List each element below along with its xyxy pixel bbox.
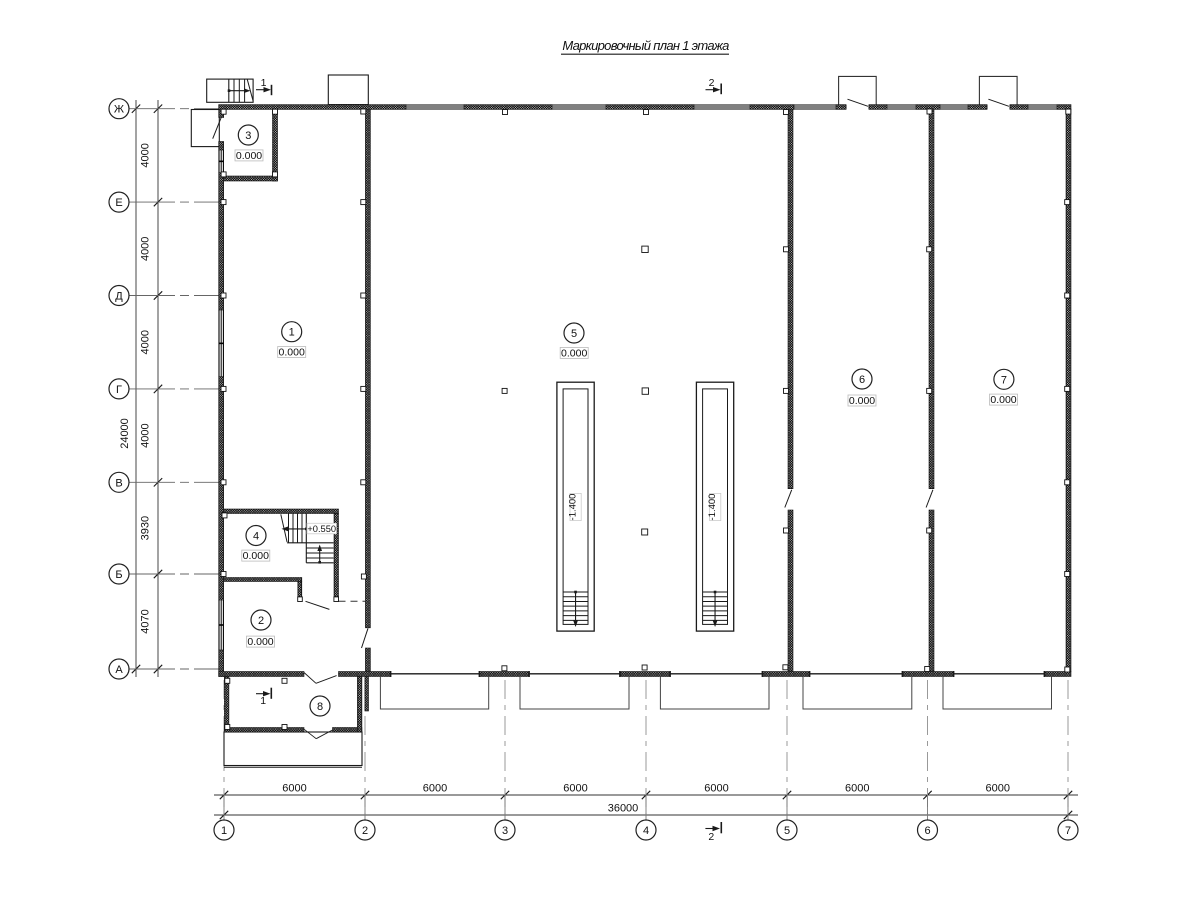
svg-text:0.000: 0.000: [247, 636, 273, 648]
svg-text:2: 2: [709, 77, 715, 89]
svg-text:0.000: 0.000: [849, 395, 875, 407]
svg-text:4: 4: [253, 530, 259, 542]
svg-text:Е: Е: [115, 197, 122, 209]
svg-text:24000: 24000: [119, 418, 131, 449]
svg-text:6000: 6000: [282, 783, 306, 795]
svg-text:3: 3: [245, 130, 251, 142]
svg-text:Г: Г: [116, 384, 122, 396]
svg-text:6000: 6000: [986, 783, 1010, 795]
svg-text:4000: 4000: [140, 143, 152, 167]
svg-text:-1.400: -1.400: [568, 494, 579, 521]
svg-text:7: 7: [1065, 825, 1071, 837]
svg-text:6000: 6000: [704, 783, 728, 795]
svg-text:+0.550: +0.550: [307, 524, 336, 534]
svg-text:0.000: 0.000: [561, 347, 587, 359]
svg-text:3930: 3930: [140, 516, 152, 540]
svg-text:7: 7: [1001, 374, 1007, 386]
svg-text:2: 2: [708, 831, 714, 843]
svg-text:3: 3: [502, 825, 508, 837]
svg-text:В: В: [115, 477, 122, 489]
svg-text:Маркировочный план 1 этажа: Маркировочный план 1 этажа: [562, 38, 729, 53]
svg-text:0.000: 0.000: [279, 347, 305, 359]
svg-text:6000: 6000: [845, 783, 869, 795]
svg-text:6: 6: [924, 825, 930, 837]
svg-text:8: 8: [317, 701, 323, 713]
svg-text:0.000: 0.000: [990, 394, 1016, 406]
svg-text:4000: 4000: [140, 423, 152, 447]
svg-text:0.000: 0.000: [243, 550, 269, 562]
svg-text:4000: 4000: [140, 330, 152, 354]
svg-text:-1.400: -1.400: [707, 494, 718, 521]
svg-text:Б: Б: [115, 569, 122, 581]
svg-text:4: 4: [643, 825, 649, 837]
svg-text:Д: Д: [115, 290, 123, 302]
svg-text:5: 5: [784, 825, 790, 837]
svg-text:1: 1: [260, 695, 266, 707]
svg-text:6000: 6000: [563, 783, 587, 795]
svg-text:1: 1: [289, 327, 295, 339]
svg-text:6: 6: [859, 374, 865, 386]
svg-text:2: 2: [258, 615, 264, 627]
svg-text:4070: 4070: [140, 609, 152, 633]
svg-text:Ж: Ж: [114, 104, 124, 116]
svg-text:5: 5: [571, 328, 577, 340]
svg-text:6000: 6000: [423, 783, 447, 795]
svg-text:2: 2: [362, 825, 368, 837]
svg-text:36000: 36000: [608, 803, 639, 815]
svg-text:1: 1: [221, 825, 227, 837]
svg-text:0.000: 0.000: [236, 150, 262, 162]
svg-text:А: А: [115, 664, 123, 676]
svg-text:4000: 4000: [140, 237, 152, 261]
